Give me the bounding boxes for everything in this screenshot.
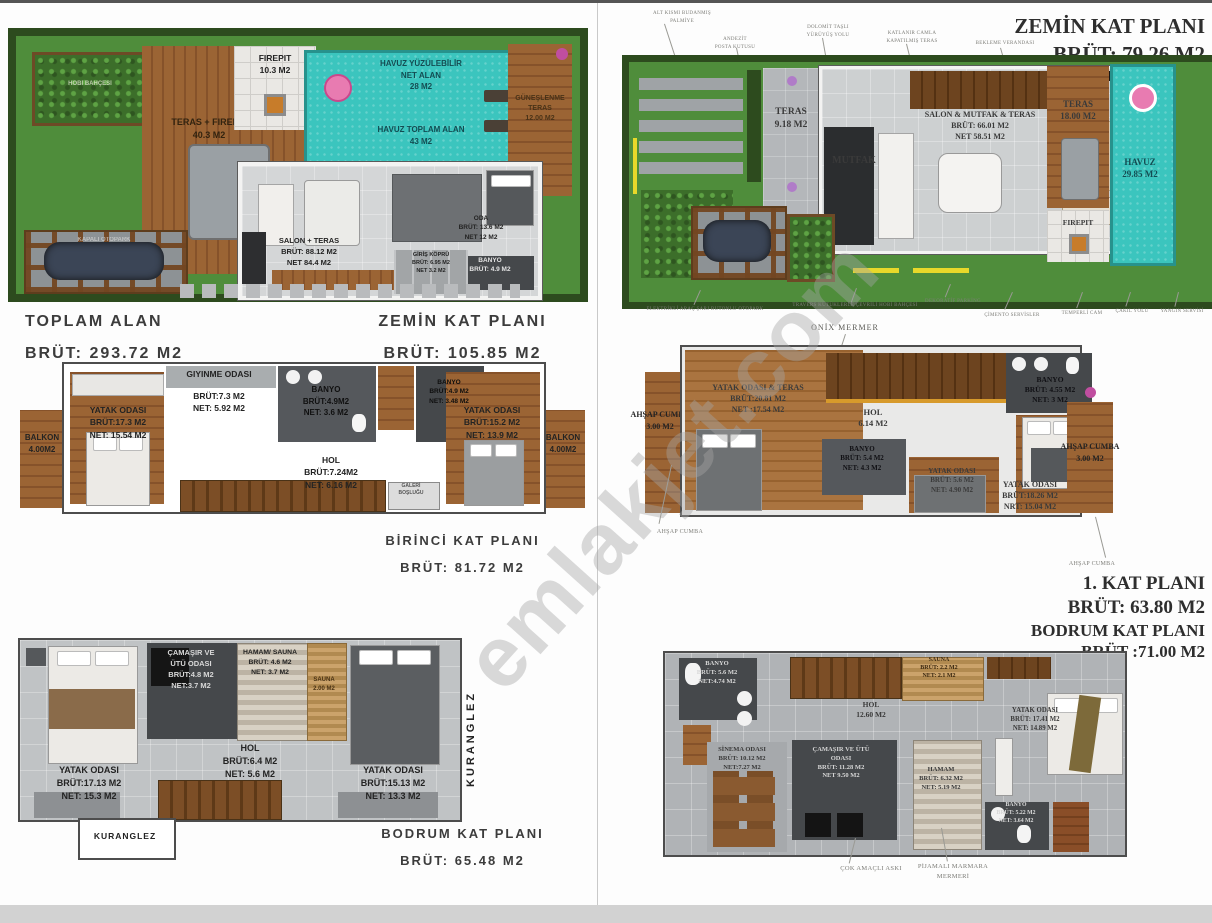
annotation: ELEKTRİKLİ ARAÇ ŞARJ BUTONLU OTOPARK [640,306,770,314]
flower-icon [556,48,568,60]
column-divider [597,3,598,905]
big-terrace-label: TERAS 18.00 M2 [1041,98,1115,122]
annotation: TRAVERS KÜTÜKLERLE ÇEVRİLİ HOBİ BAHÇESİ [790,302,920,310]
cumba-left [645,372,680,513]
banyo-bottom-label: BANYO BRÜT: 5.22 M2 NET: 3.64 M2 [985,802,1047,825]
annotation: DOLOMİT TAŞLI YÜRÜYÜŞ YOLU [788,24,868,39]
sink [1012,357,1026,371]
sauna-label: SAUNA 2.00 M2 [300,676,348,693]
basement-bedroom-left-label: YATAK ODASI BRÜT:17.13 M2 NET: 15.3 M2 [26,764,152,803]
hol-basement-label: HOL 12.60 M2 [833,700,909,720]
annotation: ÇİMENTO SERVİSLER [980,312,1044,320]
bedroom-left-bed [86,432,150,506]
annotation: YANGIN SERVİSİ [1156,308,1208,316]
yellow-marker [633,138,637,194]
right-pool-label: HAVUZ 29.85 M2 [1105,156,1175,180]
balkon-left [20,410,64,508]
flower-icon [787,76,797,86]
bedroom-basement-label: YATAK ODASI BRÜT: 17.41 M2 NET: 14.89 M2 [985,706,1085,734]
flamingo-float-icon [324,74,352,102]
banyo-top-label: BANYO BRÜT: 5.6 M2 NET:4.74 M2 [681,660,753,686]
bedroom-right-label: YATAK ODASI BRÜT:15.2 M2 NET: 13.9 M2 [438,404,546,441]
caption-1kat: 1. KAT PLANI BRÜT: 63.80 M2 [990,572,1205,620]
leader-line [1095,517,1106,558]
onix-light-strip [826,399,1006,403]
left-first-floor-plan: BALKON 4.00M2 BALKON 4.00M2 YATAK ODASI … [20,362,585,524]
caption-zemin-left: ZEMİN KAT PLANI BRÜT: 105.85 M2 [340,306,585,370]
hamam-right-label: HAMAM BRÜT: 6.32 M2 NET: 5.19 M2 [905,766,977,792]
basement-bed-right [350,645,440,765]
left-site-plan: HOBİ BAHÇESİ TERAS + FIREPIT 40.3 M2 FIR… [8,28,588,302]
dressing-title: GIYINME ODASI [164,368,274,380]
hamam-label: HAMAM/ SAUNA BRÜT: 4.6 M2 NET: 3.7 M2 [232,648,308,678]
car [44,242,164,280]
basement-hol-label: HOL BRÜT:6.4 M2 NET: 5.6 M2 [200,742,300,781]
caption-total-area: TOPLAM ALAN BRÜT: 293.72 M2 [25,306,255,370]
yellow-dash [913,268,969,273]
basement-stairs [158,780,282,820]
stairs-top [790,657,902,699]
firepit-icon [264,94,286,116]
stairs-band [826,353,1006,399]
mutfak-label: MUTFAK [819,154,889,168]
kitchen-island-white [878,133,914,239]
wc [1017,825,1031,843]
annotation: ÇAKIL YOLU [1108,308,1156,316]
washer [805,813,831,837]
bedroom-left-label: YATAK ODASI BRÜT:17.3 M2 NET: 15.54 M2 [64,404,172,441]
annotation: BEKLEME VERANDASI [962,40,1048,48]
flower-icon [1085,387,1096,398]
dressing-area: BRÜT:7.3 M2 NET: 5.92 M2 [164,390,274,415]
bedroom-right-bed [464,440,524,506]
annotation: DEKORATİF PARKİNG [920,298,986,306]
banyo2-label: BANYO BRÜT:4.9 M2 NET: 3.48 M2 [414,378,484,406]
annotation: ALT KISMI BUDANMIŞ PALMİYE [640,10,724,25]
counter-island [995,738,1013,796]
wood-band [987,657,1051,679]
carport-label: KAPALI OTOPARK [24,236,184,245]
marble-annotation: PİJAMALI MARMARA MERMERİ [901,862,1005,882]
pool-total-label: HAVUZ TOPLAM ALAN 43 M2 [346,124,496,147]
onix-mermer-annotation: ONİX MERMER [795,322,895,334]
hobby-garden [32,52,154,126]
mini-stairs [378,366,414,430]
sink [737,691,752,706]
top-edge-bar [0,0,1212,3]
desk [72,374,164,396]
cumba-right-label: AHŞAP CUMBA 3.00 M2 [1057,441,1123,464]
annotation: ANDEZİT POSTA KUTUSU [700,36,770,51]
cinema-label: SİNEMA ODASI BRÜT: 10.12 M2 NET:7.27 M2 [701,746,783,772]
gallery-label: GALERİ BOŞLUĞU [386,483,436,498]
oda-label: ODA BRÜT: 13.6 M2 NET 12 M2 [436,214,526,242]
hobby-strip [787,214,835,282]
kuranglez-box-label: KURANGLEZ [78,830,172,842]
recliner-seats [713,771,775,847]
firepit-right-label: FIREPIT [1047,218,1109,228]
banyo2-right-label: BANYO BRÜT: 5.4 M2 NET: 4.3 M2 [822,445,902,473]
banyo1-sink [308,370,322,384]
flower-icon [787,182,797,192]
yellow-dash [853,268,899,273]
basement-bed-left [48,646,138,764]
wood-patch [1053,802,1089,852]
stepping-path [180,284,520,298]
bedroom-teras-label: YATAK ODASI & TERAS BRÜT:20.81 M2 NET :1… [688,383,828,415]
hol-right-label: HOL 6.14 M2 [828,407,918,430]
salon-label: SALON + TERAS BRÜT: 88.12 M2 NET 84.4 M2 [254,236,364,269]
bottom-edge-bar [0,905,1212,923]
banyo1-right-label: BANYO BRÜT: 4.55 M2 NET: 3 M2 [1007,375,1093,405]
caption-bodrum-left: BODRUM KAT PLANI BRÜT: 65.48 M2 [340,820,585,875]
parking-slabs [639,72,743,174]
right-ground-plan: TERAS 9.18 M2 MUTFAK SALON & MUTFAK & TE… [622,55,1212,309]
terrace-table [1061,138,1099,200]
annotation: TEMPERLİ CAM [1052,310,1112,318]
leader-line [664,24,675,57]
banyo1-sink [286,370,300,384]
sink [1034,357,1048,371]
hamam-right-room [913,740,982,850]
basement-bedroom-right-label: YATAK ODASI BRÜT:15.13 M2 NET: 13.3 M2 [330,764,456,803]
dining-table-round [938,153,1002,213]
sink [737,711,752,726]
ahsap-cumba-annotation-right: AHŞAP CUMBA [1051,560,1133,569]
bedroom-left-nightstand [26,648,46,666]
firepit-icon [1069,234,1089,254]
pool-swim-label: HAVUZ YÜZÜLEBİLİR NET ALAN 28 M2 [346,58,496,93]
banyo1-label: BANYO BRÜT:4.9M2 NET: 3.6 M2 [278,384,374,419]
small-terrace-label: TERAS 9.18 M2 [757,106,825,132]
ahsap-cumba-annotation-left: AHŞAP CUMBA [640,528,720,537]
sunbathing-terrace-label: GÜNEŞLENME TERAS 12.00 M2 [504,94,576,124]
right-basement-plan: BANYO BRÜT: 5.6 M2 NET:4.74 M2 SAUNA BRÜ… [655,648,1210,893]
hol-label: HOL BRÜT:7.24M2 NET: 6.16 M2 [276,454,386,491]
sauna-right-label: SAUNA BRÜT: 2.2 M2 NET: 2.1 M2 [903,656,975,680]
caption-birinci-kat: BİRİNCİ KAT PLANI BRÜT: 81.72 M2 [340,527,585,582]
swim-ring-icon [1129,84,1157,112]
wc [1066,357,1079,374]
annotation: KATLANIR CAMLA KAPATILMIŞ TERAS [868,30,956,45]
entry-bridge-label: GİRİŞ KÖPRÜ BRÜT: 6.95 M2 NET 3.2 M2 [392,252,470,276]
kuranglez-side-label: KURANGLEZ [464,674,480,804]
right-first-floor-plan: AHŞAP CUMBA 3.00 M2 YATAK ODASI & TERAS … [633,345,1193,575]
hobby-garden-label: HOBİ BAHÇESİ [32,80,148,89]
laundry-right-label: ÇAMAŞIR VE ÜTÜ ODASI BRÜT: 11.28 M2 NET … [793,746,889,781]
dryer [837,813,863,837]
balkon-right [541,410,585,508]
car [703,220,771,262]
bed-left [696,429,762,511]
salon-mutfak-label: SALON & MUTFAK & TERAS BRÜT: 66.01 M2 NE… [895,110,1065,142]
laundry-label: ÇAMAŞIR VE ÜTÜ ODASI BRÜT:4.8 M2 NET:3.7… [148,648,234,692]
